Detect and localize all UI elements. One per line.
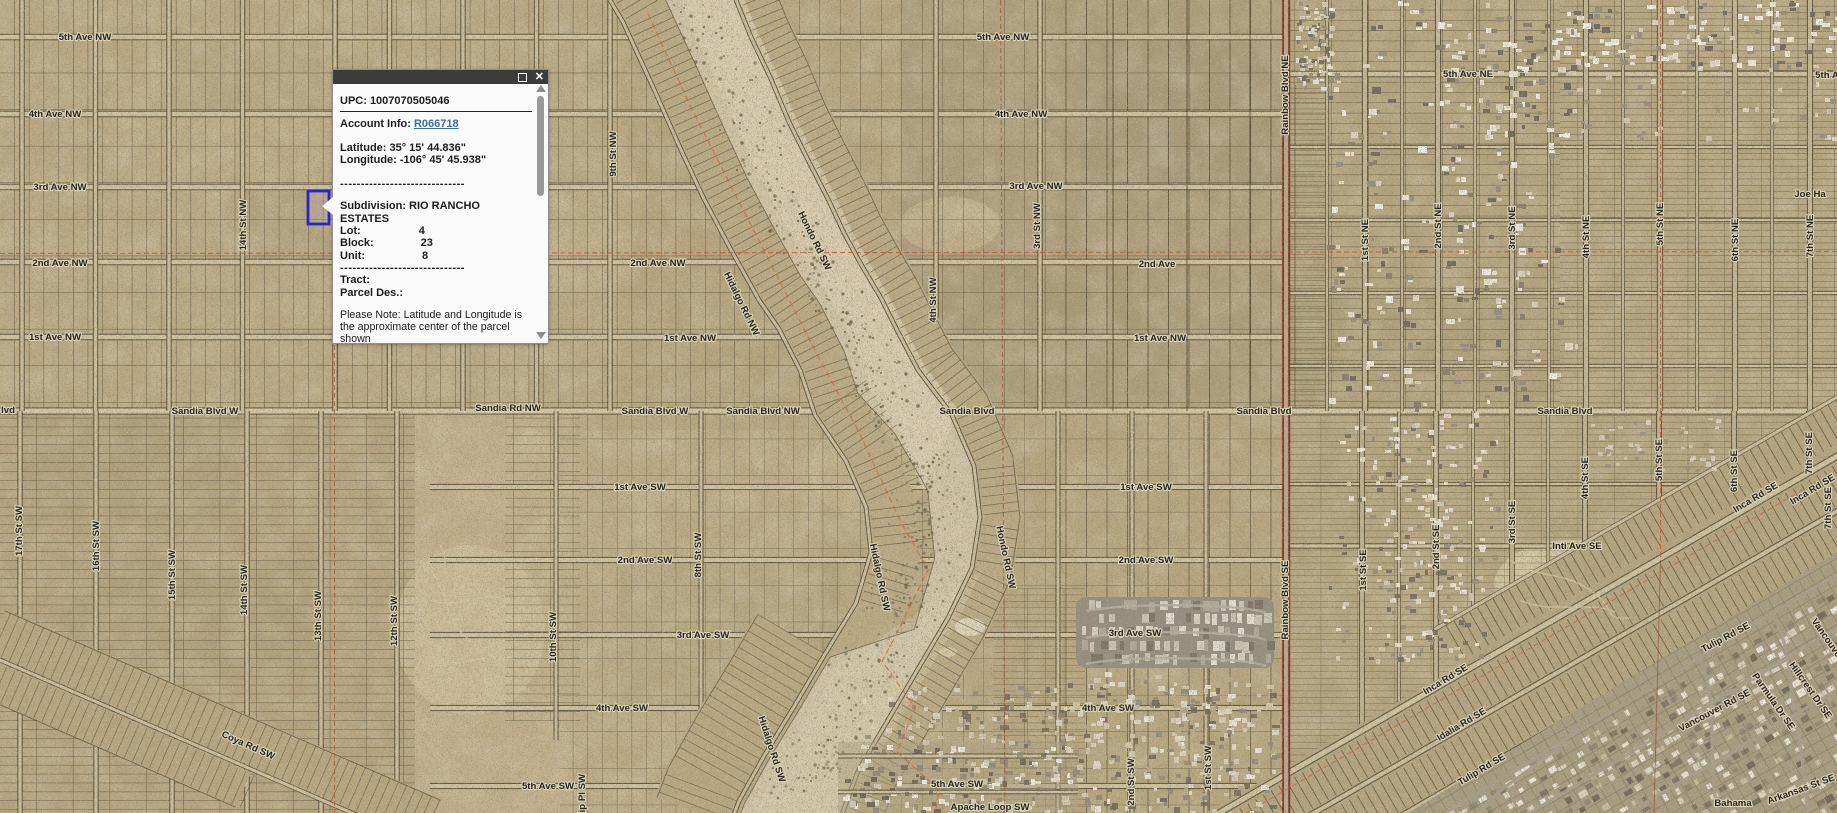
- svg-text:Tulip Pl SW: Tulip Pl SW: [577, 773, 588, 813]
- svg-text:Sandia Blvd: Sandia Blvd: [1237, 406, 1292, 417]
- svg-text:2nd Ave NW: 2nd Ave NW: [32, 258, 88, 269]
- svg-text:4th St SE: 4th St SE: [1580, 456, 1591, 499]
- svg-text:7th St NE: 7th St NE: [1805, 214, 1816, 257]
- svg-text:3rd Ave SW: 3rd Ave SW: [677, 630, 731, 641]
- svg-text:Sandia Blvd W: Sandia Blvd W: [622, 406, 690, 417]
- svg-text:Rainbow Blvd NE: Rainbow Blvd NE: [1280, 55, 1291, 135]
- svg-text:lvd: lvd: [1, 405, 15, 416]
- svg-text:4th Ave NW: 4th Ave NW: [995, 109, 1049, 120]
- svg-text:6th St NE: 6th St NE: [1730, 218, 1741, 261]
- svg-text:2nd St SW: 2nd St SW: [1126, 757, 1137, 805]
- svg-text:4th Ave SW: 4th Ave SW: [1082, 703, 1135, 714]
- svg-text:Apache Loop SW: Apache Loop SW: [951, 802, 1031, 813]
- svg-text:14th St NW: 14th St NW: [238, 199, 249, 251]
- svg-text:1st St SW: 1st St SW: [1203, 745, 1214, 790]
- svg-text:Rainbow Blvd SE: Rainbow Blvd SE: [1280, 560, 1291, 639]
- svg-text:7th St SE: 7th St SE: [1823, 486, 1834, 529]
- svg-text:2nd Ave: 2nd Ave: [1139, 259, 1176, 270]
- svg-text:7th St SE: 7th St SE: [1804, 431, 1815, 474]
- svg-text:1st Ave SW: 1st Ave SW: [1120, 482, 1172, 493]
- svg-text:5th Ave SW: 5th Ave SW: [931, 779, 984, 790]
- svg-text:1st Ave SW: 1st Ave SW: [614, 482, 666, 493]
- svg-text:Sandia Blvd: Sandia Blvd: [1538, 406, 1593, 417]
- svg-text:3rd Ave NW: 3rd Ave NW: [33, 182, 87, 193]
- svg-text:2nd Ave SW: 2nd Ave SW: [618, 555, 674, 566]
- svg-text:3rd Ave NW: 3rd Ave NW: [1009, 181, 1063, 192]
- svg-text:2nd St SE: 2nd St SE: [1431, 524, 1442, 569]
- svg-text:1st Ave NW: 1st Ave NW: [664, 333, 717, 344]
- svg-text:5th St SE: 5th St SE: [1654, 438, 1665, 481]
- svg-text:Sandia Blvd W: Sandia Blvd W: [172, 406, 240, 417]
- svg-text:2nd Ave SW: 2nd Ave SW: [1119, 555, 1175, 566]
- svg-text:6th St SE: 6th St SE: [1729, 449, 1740, 492]
- svg-text:5th Ave NW: 5th Ave NW: [59, 32, 113, 43]
- svg-text:2nd St NE: 2nd St NE: [1433, 203, 1444, 249]
- svg-text:17th St SW: 17th St SW: [14, 505, 25, 556]
- svg-text:4th Ave NW: 4th Ave NW: [29, 109, 83, 120]
- svg-text:Sandia Blvd NW: Sandia Blvd NW: [726, 406, 801, 417]
- svg-text:1st St SE: 1st St SE: [1358, 549, 1369, 591]
- svg-text:Inti Ave SE: Inti Ave SE: [1552, 541, 1602, 552]
- svg-text:3rd St SE: 3rd St SE: [1507, 500, 1518, 543]
- svg-text:3rd St NW: 3rd St NW: [1032, 202, 1043, 249]
- svg-text:2nd Ave NW: 2nd Ave NW: [630, 258, 686, 269]
- svg-text:5th St NE: 5th St NE: [1655, 202, 1666, 245]
- svg-text:3rd St NE: 3rd St NE: [1507, 206, 1518, 250]
- svg-text:16th St SW: 16th St SW: [91, 520, 102, 571]
- svg-text:1st Ave NW: 1st Ave NW: [29, 332, 82, 343]
- svg-text:10th St SW: 10th St SW: [548, 611, 559, 662]
- svg-text:14th St SW: 14th St SW: [239, 564, 250, 615]
- svg-text:3rd Ave SW: 3rd Ave SW: [1109, 628, 1163, 639]
- svg-text:1st Ave NW: 1st Ave NW: [1134, 333, 1187, 344]
- svg-text:Sandia Blvd: Sandia Blvd: [940, 406, 995, 417]
- svg-text:4th St NE: 4th St NE: [1581, 215, 1592, 258]
- svg-text:Bahama: Bahama: [1714, 798, 1752, 809]
- svg-text:5th Ave SW: 5th Ave SW: [522, 781, 575, 792]
- svg-text:8th St SW: 8th St SW: [693, 532, 704, 578]
- svg-text:4th Ave SW: 4th Ave SW: [596, 703, 649, 714]
- svg-text:12th St SW: 12th St SW: [389, 595, 400, 646]
- svg-text:1st St NE: 1st St NE: [1360, 218, 1371, 261]
- svg-text:5th Ave NE: 5th Ave NE: [1443, 69, 1494, 80]
- svg-text:15th St SW: 15th St SW: [167, 549, 178, 600]
- svg-text:Joe Ha: Joe Ha: [1794, 189, 1826, 200]
- svg-text:13th St SW: 13th St SW: [313, 590, 324, 641]
- svg-text:Sandia Rd NW: Sandia Rd NW: [475, 403, 542, 414]
- svg-text:5th A: 5th A: [1815, 70, 1837, 81]
- svg-text:4th St NW: 4th St NW: [928, 276, 939, 322]
- svg-text:5th Ave NW: 5th Ave NW: [977, 32, 1031, 43]
- svg-text:9th St NW: 9th St NW: [608, 130, 619, 176]
